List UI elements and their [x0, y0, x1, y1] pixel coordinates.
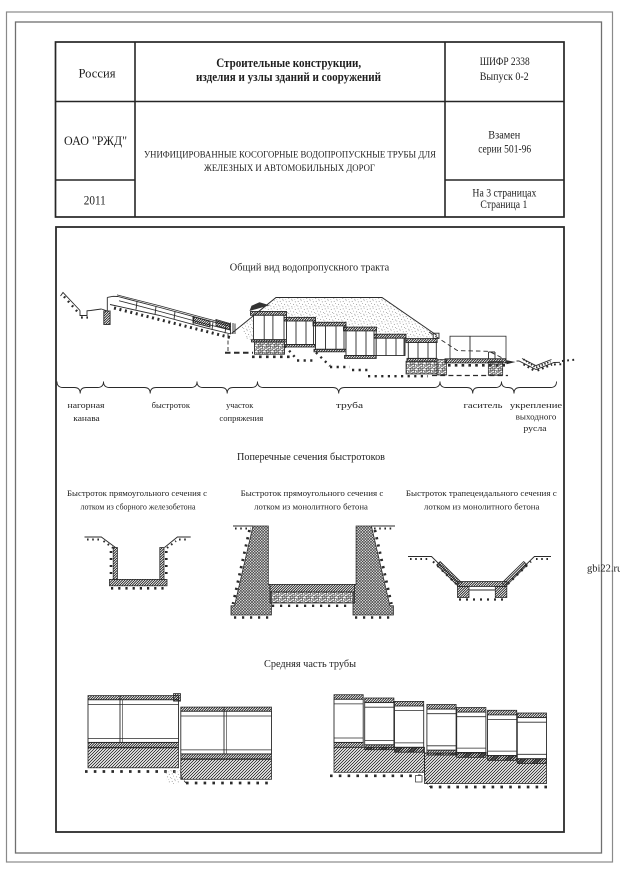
svg-text:Строительные конструкции,: Строительные конструкции,	[216, 56, 361, 70]
svg-text:канава: канава	[73, 414, 100, 423]
svg-text:Россия: Россия	[79, 66, 116, 81]
svg-text:труба: труба	[336, 401, 364, 410]
svg-text:лотком из монолитного бетона: лотком из монолитного бетона	[254, 502, 368, 512]
svg-text:изделия и узлы зданий и сооруж: изделия и узлы зданий и сооружений	[196, 70, 381, 84]
svg-text:Поперечные сечения быстротоков: Поперечные сечения быстротоков	[237, 451, 385, 463]
svg-text:Страница 1: Страница 1	[480, 199, 527, 211]
svg-text:ШИФР 2338: ШИФР 2338	[480, 54, 530, 68]
svg-text:быстроток: быстроток	[152, 401, 191, 410]
svg-text:сопряжения: сопряжения	[219, 414, 263, 423]
svg-text:Быстроток трапецеидального сеч: Быстроток трапецеидального сечения с	[406, 488, 557, 498]
svg-text:укрепление: укрепление	[510, 401, 563, 410]
svg-text:ЖЕЛЕЗНЫХ И АВТОМОБИЛЬНЫХ ДОРОГ: ЖЕЛЕЗНЫХ И АВТОМОБИЛЬНЫХ ДОРОГ	[204, 164, 376, 174]
svg-text:Быстроток прямоугольного сечен: Быстроток прямоугольного сечения с	[241, 488, 384, 498]
svg-text:УНИФИЦИРОВАННЫЕ КОСОГОРНЫЕ ВОД: УНИФИЦИРОВАННЫЕ КОСОГОРНЫЕ ВОДОПРОПУСКНЫ…	[144, 151, 436, 161]
svg-text:нагорная: нагорная	[68, 401, 105, 410]
svg-text:лотком из сборного железобетон: лотком из сборного железобетона	[81, 502, 196, 512]
svg-text:выходного: выходного	[516, 413, 557, 422]
svg-text:ОАО "РЖД": ОАО "РЖД"	[64, 133, 127, 148]
svg-text:gbi22.ru: gbi22.ru	[587, 564, 620, 575]
svg-text:Взамен: Взамен	[488, 128, 520, 142]
svg-text:русла: русла	[523, 424, 547, 433]
svg-text:Быстроток прямоугольного сечен: Быстроток прямоугольного сечения с	[67, 488, 207, 498]
svg-text:серии 501-96: серии 501-96	[478, 142, 531, 156]
svg-text:2011: 2011	[84, 193, 106, 208]
svg-text:На 3 страницах: На 3 страницах	[472, 188, 536, 200]
svg-text:участок: участок	[226, 401, 254, 410]
svg-text:Выпуск 0-2: Выпуск 0-2	[480, 69, 529, 83]
svg-text:гаситель: гаситель	[464, 401, 503, 410]
svg-text:Общий вид водопропускного трак: Общий вид водопропускного тракта	[230, 262, 390, 274]
svg-text:лотком из монолитного бетона: лотком из монолитного бетона	[424, 502, 540, 512]
svg-text:Средняя часть трубы: Средняя часть трубы	[264, 658, 357, 670]
